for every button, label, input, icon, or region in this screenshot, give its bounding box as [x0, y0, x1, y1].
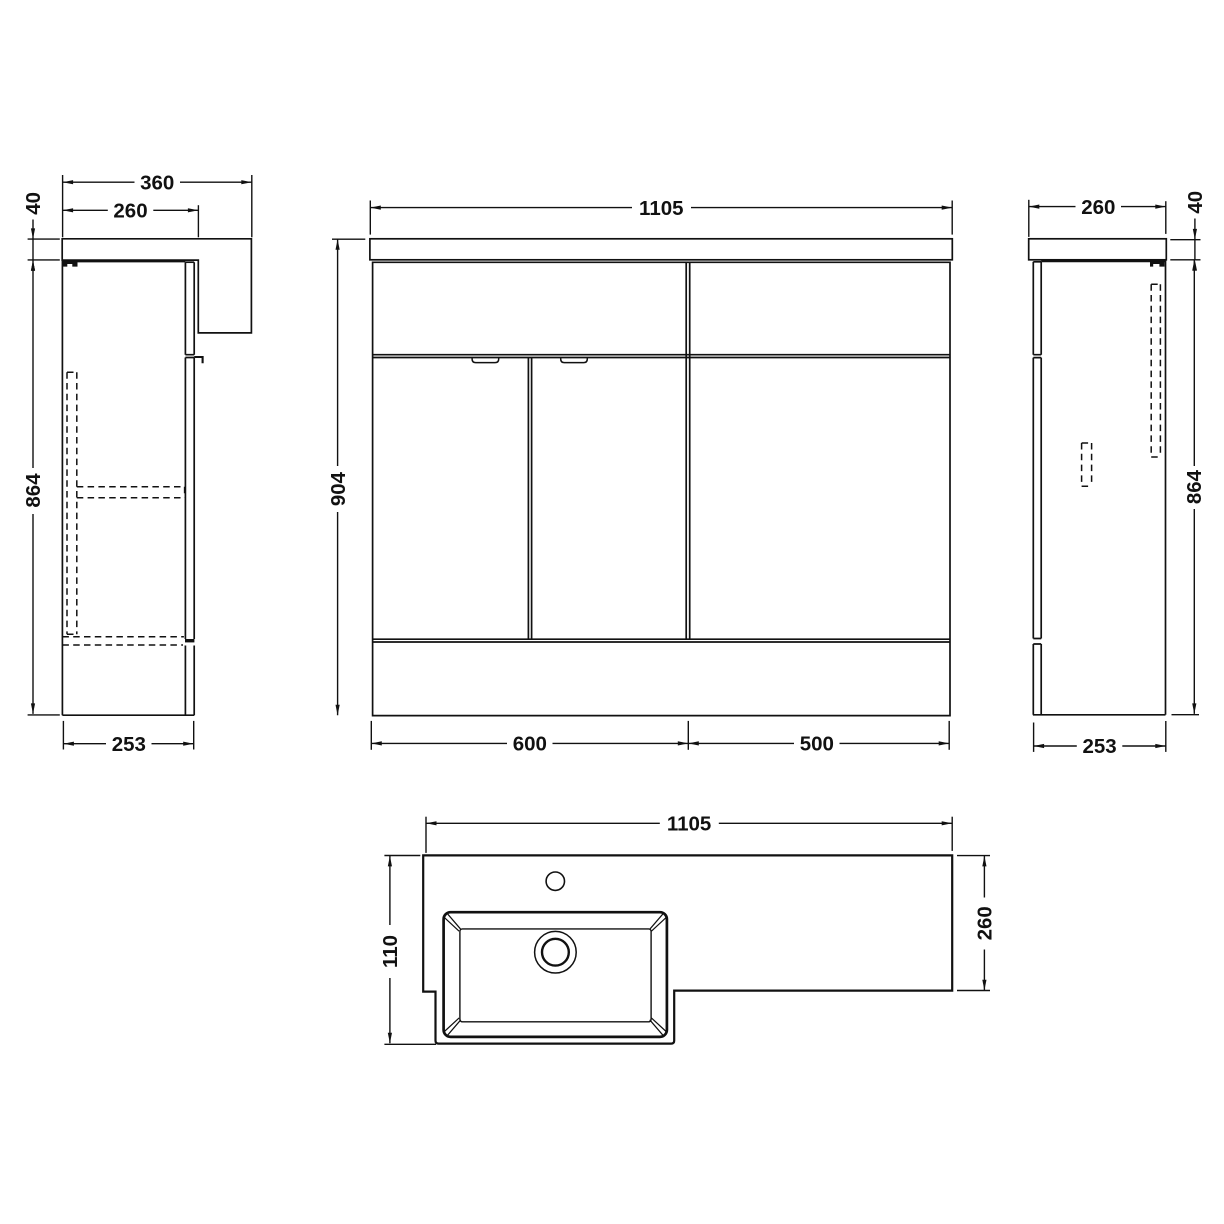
- svg-text:864: 864: [22, 473, 45, 508]
- svg-text:360: 360: [140, 171, 174, 194]
- svg-text:904: 904: [327, 471, 350, 506]
- svg-text:864: 864: [1183, 469, 1206, 504]
- svg-text:260: 260: [973, 906, 996, 940]
- svg-text:253: 253: [1082, 735, 1116, 758]
- svg-text:500: 500: [800, 733, 834, 756]
- svg-text:1105: 1105: [667, 813, 711, 836]
- svg-text:1105: 1105: [639, 197, 683, 220]
- svg-text:40: 40: [22, 192, 45, 215]
- svg-text:110: 110: [379, 935, 402, 968]
- svg-text:40: 40: [1184, 191, 1207, 214]
- svg-text:260: 260: [113, 200, 147, 223]
- svg-text:600: 600: [513, 733, 547, 756]
- svg-text:253: 253: [112, 733, 146, 756]
- svg-text:260: 260: [1081, 196, 1115, 219]
